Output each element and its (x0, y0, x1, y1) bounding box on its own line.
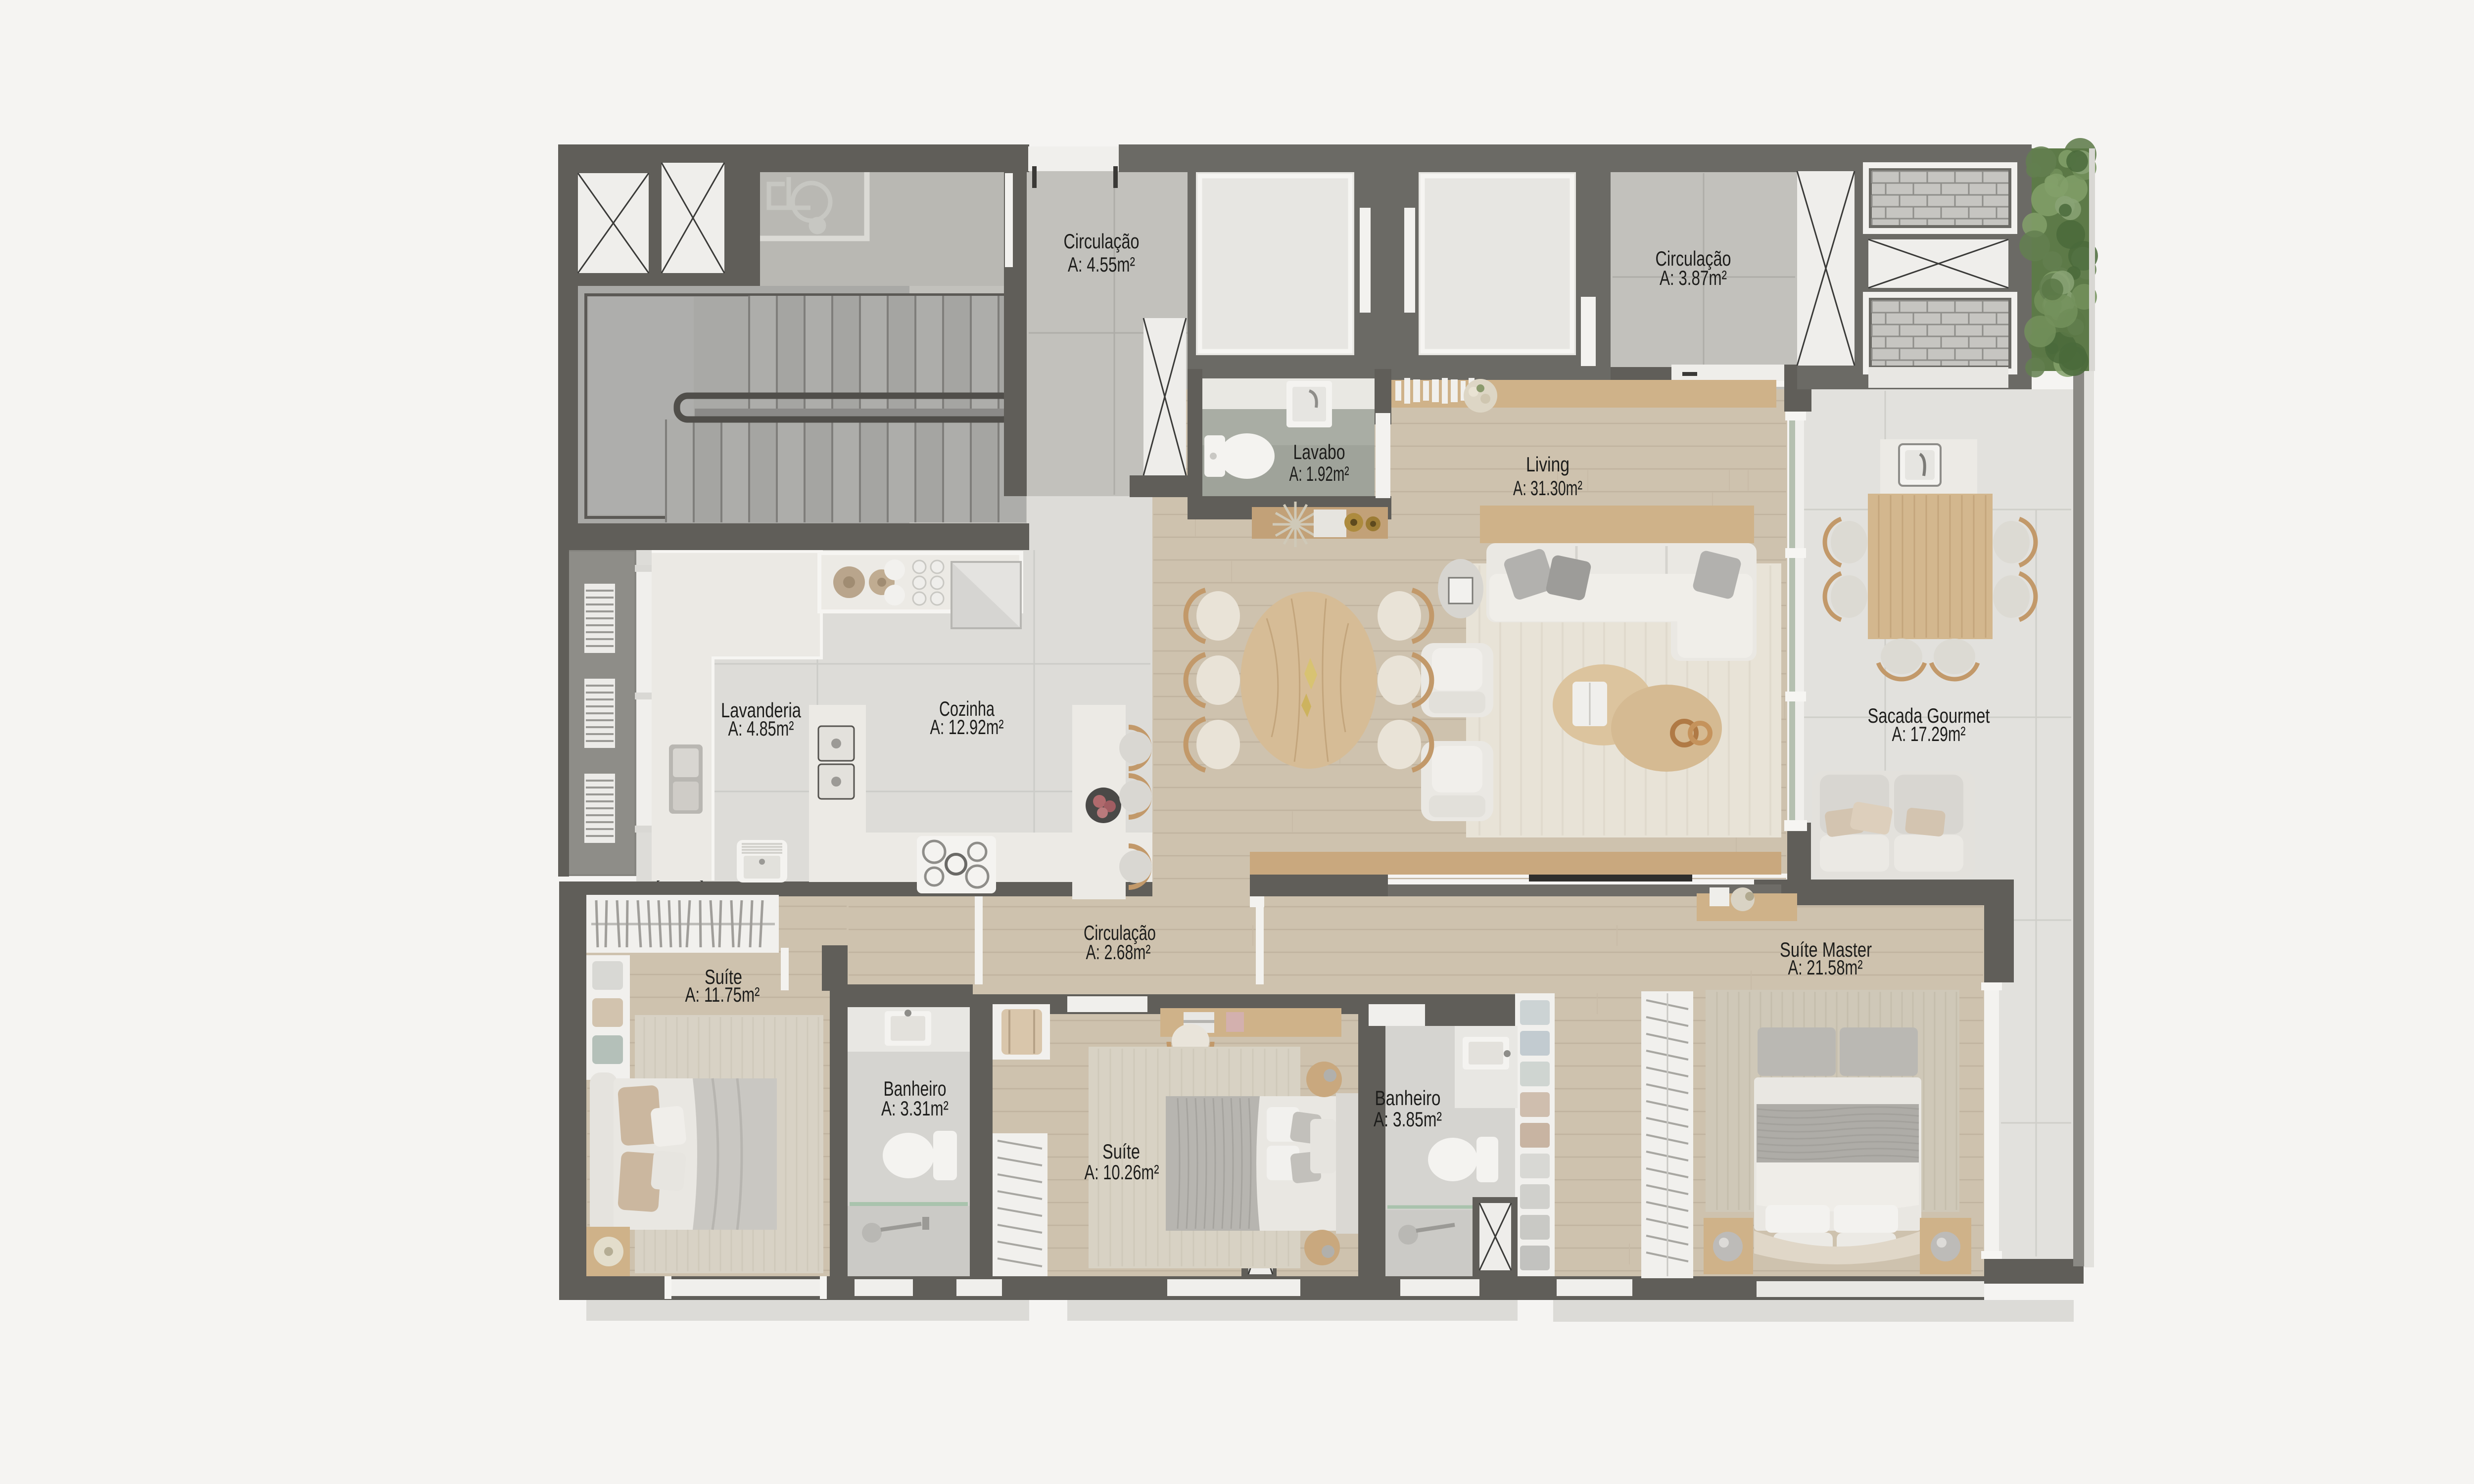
svg-text:Banheiro: Banheiro (1375, 1086, 1441, 1110)
svg-text:A: 17.29m²: A: 17.29m² (1892, 722, 1966, 745)
svg-text:A: 10.26m²: A: 10.26m² (1085, 1160, 1159, 1184)
svg-text:A: 1.92m²: A: 1.92m² (1289, 462, 1349, 485)
svg-text:A: 12.92m²: A: 12.92m² (930, 715, 1004, 739)
svg-text:A: 4.85m²: A: 4.85m² (728, 717, 794, 740)
svg-text:A: 31.30m²: A: 31.30m² (1513, 476, 1582, 500)
svg-text:Living: Living (1526, 453, 1570, 476)
svg-text:A: 3.31m²: A: 3.31m² (881, 1097, 949, 1120)
svg-text:Lavabo: Lavabo (1293, 440, 1345, 464)
svg-text:A: 11.75m²: A: 11.75m² (685, 983, 760, 1006)
svg-text:A: 2.68m²: A: 2.68m² (1086, 940, 1151, 964)
svg-text:A: 21.58m²: A: 21.58m² (1788, 956, 1863, 979)
svg-text:Circulação: Circulação (1064, 230, 1140, 253)
svg-text:A: 3.87m²: A: 3.87m² (1660, 266, 1727, 289)
svg-text:Suíte: Suíte (1102, 1140, 1140, 1163)
svg-text:A: 3.85m²: A: 3.85m² (1374, 1108, 1442, 1131)
svg-text:A: 4.55m²: A: 4.55m² (1068, 253, 1135, 276)
